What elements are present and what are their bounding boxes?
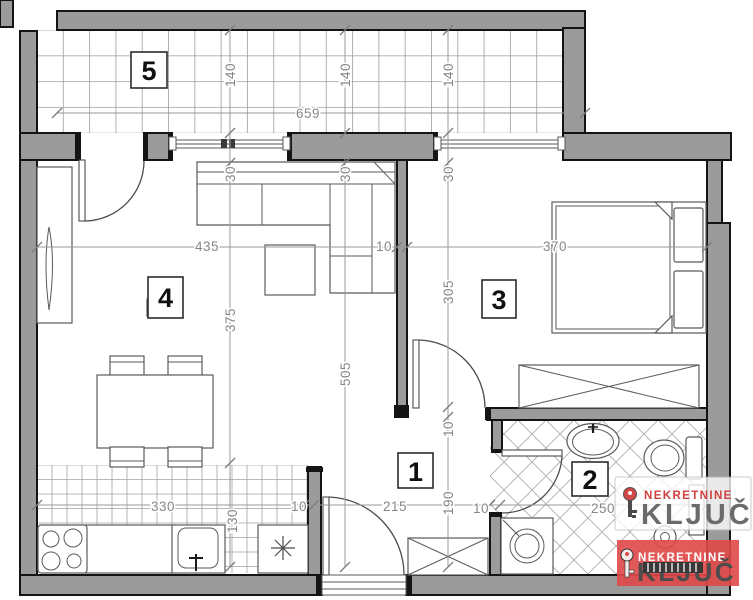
bedroom-door (413, 340, 485, 408)
living-bedroom-divider (397, 160, 407, 410)
balcony-number: 5 (141, 56, 156, 86)
slider-handle-icon (221, 139, 227, 148)
bottom-wall-left (20, 575, 322, 595)
dim-bathroom-width: 250 (591, 501, 615, 516)
pier-b (144, 133, 172, 160)
dim-bedroom-width: 370 (543, 239, 567, 254)
room-label-bedroom: 3 (482, 280, 516, 318)
key-teeth-bar-icon (643, 562, 703, 573)
bedroom-top-wall (563, 133, 731, 160)
pillow (674, 271, 703, 328)
neighbor-wall-stub (0, 0, 13, 27)
dim-total-depth: 505 (338, 362, 353, 386)
counter-section (85, 525, 175, 573)
top-wall (57, 11, 585, 30)
toilet-tank (686, 437, 702, 479)
floor-plan-drawing: 659 140 140 140 30 30 30 435 10 370 375 … (0, 0, 753, 600)
dim-kitchen-depth: 130 (225, 509, 240, 533)
room-label-hall: 1 (398, 453, 433, 488)
kitchen-counter (38, 525, 308, 573)
watermark-brand-main: KLJUČ (641, 497, 753, 531)
room-label-balcony: 5 (131, 52, 167, 88)
wall-wardrobe (37, 167, 72, 323)
dim-hall-wall: 10 (441, 421, 456, 437)
balcony-partition-row (20, 133, 731, 160)
hall-number: 1 (408, 457, 423, 487)
floor-plan-page: 659 140 140 140 30 30 30 435 10 370 375 … (0, 0, 753, 600)
dim-balcony-width: 659 (296, 106, 320, 121)
bathroom-number: 2 (582, 465, 597, 495)
stove (38, 525, 87, 573)
dim-balcony-depth-2: 140 (338, 63, 353, 87)
dim-bath-wall: 10 (473, 501, 489, 516)
living-number: 4 (158, 283, 173, 313)
chair (110, 447, 144, 467)
dim-bedroom-depth: 305 (441, 280, 456, 304)
dim-kitchen-wall: 10 (291, 499, 307, 514)
dim-wall-30-2: 30 (338, 166, 353, 182)
bedroom-wardrobe (519, 365, 699, 408)
dim-balcony-depth-1: 140 (223, 63, 238, 87)
pillow (674, 208, 703, 262)
dim-kitchen-run: 330 (151, 499, 175, 514)
balcony-door (79, 160, 144, 221)
chair (168, 447, 202, 467)
toilet (644, 437, 702, 479)
dim-hall-width: 215 (383, 499, 407, 514)
dining-table (97, 375, 213, 448)
dim-living-width: 435 (195, 239, 219, 254)
balcony-right-wall (563, 28, 585, 135)
dim-wall-30-3: 30 (441, 166, 456, 182)
right-wall-upper (707, 157, 722, 225)
coffee-table (265, 245, 315, 295)
entrance-threshold (322, 575, 406, 595)
washing-machine (501, 518, 553, 574)
double-bed (552, 202, 706, 333)
brand-badge: NEKRETNINE KLJUČ (617, 540, 739, 587)
dim-wall-30-1: 30 (223, 166, 238, 182)
left-wall (20, 31, 37, 595)
mid-top-wall (288, 133, 437, 160)
bathroom-wall-lower (490, 513, 501, 575)
kitchen-sink (172, 525, 225, 573)
brand-watermark: NEKRETNINE KLJUČ (615, 477, 753, 531)
pier-a (20, 133, 80, 160)
dim-hall-depth: 190 (441, 491, 456, 515)
room-label-bathroom: 2 (572, 462, 608, 496)
room-label-living: 4 (148, 277, 183, 318)
chair (110, 356, 144, 376)
bathroom-door-jamb-upper (492, 420, 502, 452)
dishwasher (258, 525, 308, 573)
kitchen-hall-stub (308, 467, 321, 575)
dim-balcony-depth-3: 140 (441, 63, 456, 87)
right-wall-lower (707, 223, 730, 595)
dining-set (97, 356, 213, 467)
bathroom-sink (567, 424, 619, 459)
bedroom-bathroom-wall (487, 408, 707, 420)
dim-living-depth: 375 (223, 308, 238, 332)
chair (168, 356, 202, 376)
dim-divider-wall: 10 (376, 239, 392, 254)
bedroom-number: 3 (491, 285, 506, 315)
